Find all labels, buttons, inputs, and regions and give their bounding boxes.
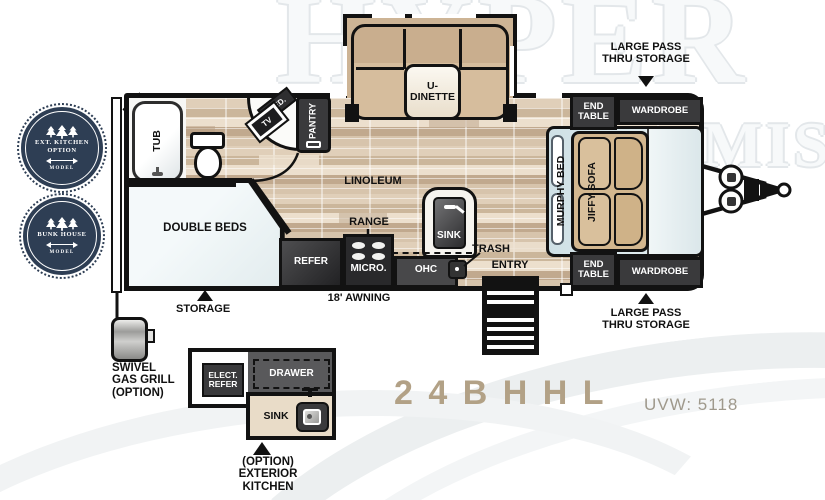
elect-refer: ELECT. REFER (202, 363, 244, 397)
badge-ext-kitchen-option: EXT. KITCHEN OPTION MODEL (21, 107, 103, 189)
jiffy-sofa (571, 131, 649, 252)
trash-dot (455, 267, 459, 271)
gas-grill (111, 317, 148, 362)
sofa-cushion (614, 137, 643, 190)
pine-trees-icon (44, 125, 80, 139)
badge-bunk-house: BUNK HOUSE MODEL (23, 197, 101, 275)
badge-model-label: MODEL (50, 166, 75, 171)
range-microwave (343, 234, 394, 288)
wardrobe-top: WARDROBE (617, 97, 703, 125)
toilet-bowl (194, 146, 222, 179)
badge-title: EXT. KITCHEN (35, 139, 89, 147)
wardrobe-label: WARDROBE (632, 106, 688, 116)
badge-title: OPTION (47, 147, 76, 155)
coupler-ball-icon (778, 184, 790, 196)
slide-window (372, 14, 405, 18)
step-divider (487, 331, 534, 336)
bench-seam (460, 67, 508, 70)
coupler-icon (760, 181, 790, 199)
slide-bracket (345, 104, 359, 122)
slide-bracket (503, 104, 517, 122)
slide-window (343, 46, 347, 96)
mattress (647, 129, 701, 254)
ohc-dash-line (392, 252, 472, 254)
end-table-top: END TABLE (570, 94, 617, 130)
dinette-label: U-DINETTE (407, 81, 458, 104)
drawer-label: DRAWER (269, 369, 313, 380)
arrow-up-icon (638, 293, 654, 304)
floorplan-page: HYPER MISH TUB MED. TV PANTRY (0, 0, 825, 500)
burner-icon (372, 253, 385, 260)
linoleum-label: LINOLEUM (336, 176, 410, 188)
uvw-value: UVW: 5118 (644, 396, 738, 413)
ext-kitchen-label: (OPTION) EXTERIOR KITCHEN (212, 456, 324, 493)
wardrobe-label: WARDROBE (632, 267, 688, 277)
entry-label: ENTRY (487, 260, 533, 272)
model-code: 2 4 B H H L (394, 376, 606, 410)
ohc-label: OHC (399, 265, 453, 276)
pantry-label: PANTRY (309, 103, 318, 139)
pantry-step-icon (306, 141, 321, 148)
bench-seam (459, 29, 462, 69)
trash-can (448, 260, 467, 279)
basin-inner (303, 409, 321, 425)
grill-label: SWIVEL GAS GRILL (OPTION) (112, 362, 192, 399)
rear-bumper (111, 97, 122, 293)
tub-label: TUB (152, 130, 163, 152)
bench-seam (403, 29, 406, 69)
end-table-bottom: END TABLE (570, 252, 617, 288)
double-beds-label: DOUBLE BEDS (150, 222, 260, 234)
wardrobe-bottom: WARDROBE (617, 257, 703, 288)
tub-faucet-icon (156, 167, 159, 174)
arrow-ornament-icon (43, 158, 81, 163)
end-table-label: END TABLE (578, 260, 609, 281)
wall-window (536, 93, 562, 98)
basin-dot (307, 414, 312, 419)
step-treads (487, 291, 534, 349)
arrow-down-icon (638, 76, 654, 87)
elect-refer-label: ELECT. REFER (208, 371, 237, 389)
exterior-sink-panel: SINK (246, 392, 336, 440)
pass-thru-bottom-label: LARGE PASS THRU STORAGE (598, 308, 694, 332)
murphy-bed (546, 126, 704, 257)
slide-window (510, 46, 514, 96)
arrow-up-icon (197, 290, 213, 301)
badge-title: BUNK HOUSE (37, 231, 86, 239)
exterior-drawer: DRAWER (253, 359, 330, 389)
slide-window (412, 14, 476, 18)
watermark-brand-text-2: MISH (702, 108, 825, 182)
awning-label: 18' AWNING (322, 293, 396, 305)
murphy-bed-label: MURPHY BED (556, 156, 567, 226)
bathroom-wall (124, 180, 236, 187)
burner-icon (352, 253, 365, 260)
sink-label: SINK (430, 231, 468, 242)
exterior-sink-basin (296, 402, 329, 432)
entry-steps (482, 276, 539, 355)
exterior-faucet-icon (302, 388, 318, 391)
range-label: RANGE (346, 217, 392, 229)
burner-icon (352, 242, 365, 249)
dinette-table: U-DINETTE (404, 64, 461, 120)
floor-plank (259, 155, 319, 165)
double-beds-mattress (129, 183, 283, 286)
end-table-label: END TABLE (578, 102, 609, 123)
badge-model-label: MODEL (50, 250, 75, 255)
arrow-ornament-icon (43, 242, 81, 247)
step-divider (487, 309, 534, 314)
arrow-up-icon (253, 442, 271, 455)
pass-thru-top-label: LARGE PASS THRU STORAGE (598, 42, 694, 66)
faucet-handle-icon (455, 205, 464, 213)
entry-light (560, 283, 573, 296)
exterior-sink-label: SINK (258, 411, 294, 422)
bench-seam (356, 67, 404, 70)
sofa-cushion (614, 193, 643, 246)
micro-label: MICRO. (345, 264, 392, 275)
propane-tank-icon (720, 190, 742, 212)
pine-trees-icon (44, 217, 80, 231)
jiffy-sofa-label: JIFFY SOFA (587, 162, 598, 222)
grill-knob (146, 329, 155, 343)
storage-label: STORAGE (176, 304, 230, 316)
tv-label: TV (260, 116, 273, 129)
burner-icon (372, 242, 385, 249)
trash-label: TRASH (468, 244, 514, 256)
refer-label: REFER (283, 257, 339, 268)
